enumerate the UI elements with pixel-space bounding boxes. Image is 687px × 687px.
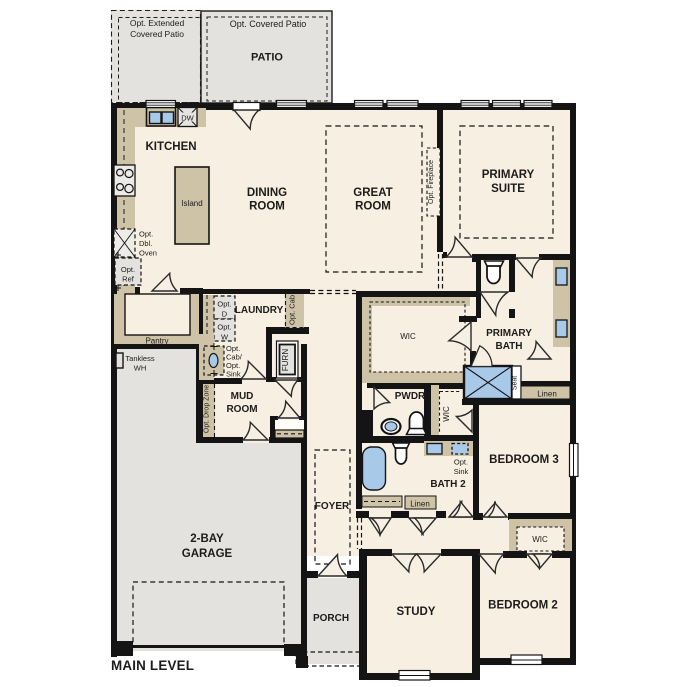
svg-text:Opt. Fireplace: Opt. Fireplace <box>428 160 435 204</box>
svg-text:Opt.: Opt. <box>139 230 153 239</box>
svg-text:Tankless: Tankless <box>125 354 154 363</box>
svg-text:ROOM: ROOM <box>249 201 285 213</box>
svg-text:WIC: WIC <box>442 406 451 422</box>
svg-text:FURN: FURN <box>281 349 290 371</box>
svg-text:Ref: Ref <box>122 275 135 284</box>
svg-text:D: D <box>222 310 228 319</box>
svg-text:Sink: Sink <box>454 467 469 476</box>
svg-text:Opt. Cab: Opt. Cab <box>288 295 297 325</box>
svg-text:MUD: MUD <box>231 391 254 402</box>
svg-text:Opt.: Opt. <box>454 458 468 467</box>
svg-text:Dbl.: Dbl. <box>139 239 152 248</box>
svg-text:PWDR: PWDR <box>395 391 426 402</box>
svg-text:LAUNDRY: LAUNDRY <box>235 305 284 316</box>
svg-text:PRIMARY: PRIMARY <box>482 169 535 181</box>
svg-text:Seat: Seat <box>512 376 519 390</box>
svg-text:WIC: WIC <box>532 535 548 544</box>
svg-text:MAIN LEVEL: MAIN LEVEL <box>111 658 194 673</box>
svg-text:GREAT: GREAT <box>353 187 392 199</box>
svg-text:Opt. Extended: Opt. Extended <box>130 18 185 28</box>
svg-text:PRIMARY: PRIMARY <box>486 328 532 339</box>
svg-text:ROOM: ROOM <box>355 201 391 213</box>
svg-text:Oven: Oven <box>139 249 157 258</box>
svg-text:KITCHEN: KITCHEN <box>145 141 196 153</box>
svg-text:ROOM: ROOM <box>226 404 257 415</box>
svg-text:Island: Island <box>181 199 202 208</box>
svg-text:GARAGE: GARAGE <box>182 548 233 560</box>
svg-text:Opt.: Opt. <box>217 323 231 332</box>
svg-text:Sink: Sink <box>226 370 241 379</box>
svg-text:Opt. Drop Zone: Opt. Drop Zone <box>204 385 211 433</box>
svg-text:Opt.: Opt. <box>217 300 231 309</box>
svg-text:WIC: WIC <box>400 332 416 341</box>
svg-text:PORCH: PORCH <box>313 613 349 624</box>
svg-text:WH: WH <box>134 364 147 373</box>
svg-text:Linen: Linen <box>410 500 430 509</box>
svg-text:W: W <box>221 333 229 342</box>
svg-text:SUITE: SUITE <box>491 183 525 195</box>
svg-text:BATH: BATH <box>495 341 522 352</box>
svg-text:FOYER: FOYER <box>315 501 350 512</box>
svg-text:BATH 2: BATH 2 <box>430 479 466 490</box>
svg-text:BEDROOM 3: BEDROOM 3 <box>489 454 559 466</box>
svg-text:DW: DW <box>181 114 194 123</box>
svg-text:Pantry: Pantry <box>145 337 168 346</box>
svg-text:Opt.: Opt. <box>121 265 135 274</box>
svg-text:PATIO: PATIO <box>251 52 283 64</box>
svg-text:Linen: Linen <box>537 390 557 399</box>
svg-text:BEDROOM 2: BEDROOM 2 <box>488 600 558 612</box>
svg-text:2-BAY: 2-BAY <box>190 533 224 545</box>
svg-text:STUDY: STUDY <box>397 606 436 618</box>
svg-text:Covered Patio: Covered Patio <box>130 29 184 39</box>
svg-text:DINING: DINING <box>247 187 287 199</box>
svg-text:Opt. Covered Patio: Opt. Covered Patio <box>230 19 307 29</box>
